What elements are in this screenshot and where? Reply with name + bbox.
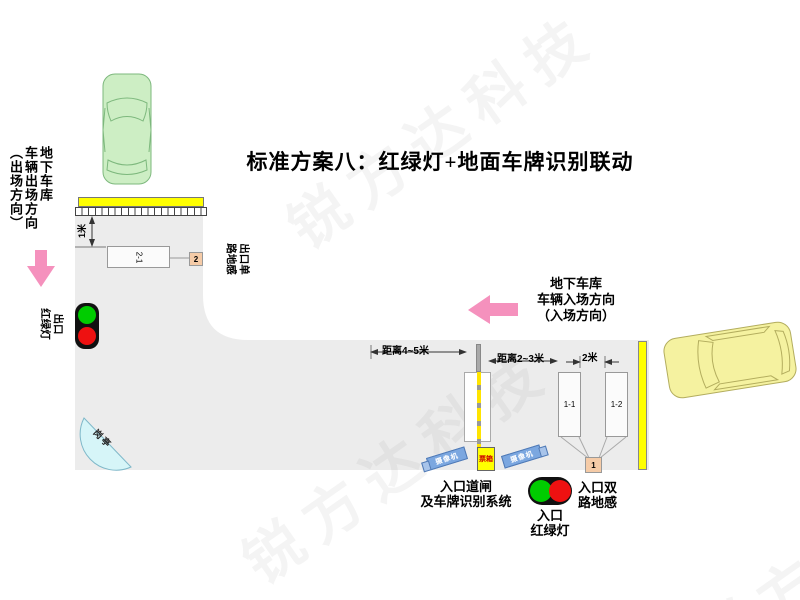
dim-2m-label: 2米 <box>582 349 598 364</box>
entry-traffic-light <box>528 477 572 505</box>
exit-sensor-line2: 路地感 <box>224 233 237 285</box>
dim-4-5m-label: 距离4~5米 <box>382 342 429 357</box>
entry-barrier-label: 入口道闸 及车牌识别系统 <box>404 479 528 509</box>
exit-light-label-line1: 出口 <box>51 298 64 350</box>
exit-light-red-lamp <box>78 327 96 345</box>
diagram-canvas: 锐方达科技 锐方达科技 锐方达科技 标准方案八：红绿灯+地面车牌识别联动 地下车… <box>0 0 800 600</box>
entry-loop-tag: 1 <box>585 457 602 473</box>
exit-sensor-line1: 出口单 <box>237 233 250 285</box>
dim-2-3m-label: 距离2~3米 <box>497 350 544 365</box>
exit-light-green-lamp <box>78 306 96 324</box>
diagram-drawing-layer <box>0 0 800 600</box>
entry-car <box>662 320 798 399</box>
entry-sensor-line1: 入口双 <box>578 480 648 495</box>
entry-stop-strip <box>638 341 647 470</box>
entry-barrier-line1: 入口道闸 <box>404 479 528 494</box>
exit-direction-label: 地下车库 车辆出场方向 （出场方向） <box>8 146 53 256</box>
exit-lane-marker <box>78 197 204 207</box>
dim-1m-label: 1米 <box>75 216 87 246</box>
entry-direction-line3: （入场方向） <box>500 308 652 324</box>
ticket-box: 票箱 <box>477 447 495 471</box>
exit-loop-box-label: 2-1 <box>134 251 143 263</box>
entry-direction-line2: 车辆入场方向 <box>500 292 652 308</box>
exit-loop-box: 2-1 <box>107 246 170 268</box>
entry-loop-box-2: 1-2 <box>605 372 628 437</box>
entry-light-label-line2: 红绿灯 <box>520 523 580 538</box>
entry-direction-line1: 地下车库 <box>500 276 652 292</box>
exit-sensor-label: 出口单 路地感 <box>224 233 250 285</box>
entry-loop-box-1: 1-1 <box>558 372 581 437</box>
entry-light-label-line1: 入口 <box>520 508 580 523</box>
entry-direction-label: 地下车库 车辆入场方向 （入场方向） <box>500 276 652 324</box>
exit-direction-line3: （出场方向） <box>8 146 23 256</box>
entry-light-label: 入口 红绿灯 <box>520 508 580 538</box>
exit-direction-line2: 车辆出场方向 <box>23 146 38 256</box>
exit-direction-line1: 地下车库 <box>38 146 53 256</box>
entry-barrier-arm <box>477 372 481 448</box>
entry-barrier-pole <box>476 344 481 372</box>
entry-sensor-line2: 路地感 <box>578 495 648 510</box>
diagram-title: 标准方案八：红绿灯+地面车牌识别联动 <box>160 146 720 176</box>
exit-car <box>103 74 151 184</box>
exit-loop-tag: 2 <box>189 252 203 266</box>
exit-light-label-line2: 红绿灯 <box>38 298 51 350</box>
exit-barrier-hatch <box>75 207 207 216</box>
entry-barrier-line2: 及车牌识别系统 <box>404 494 528 509</box>
entry-sensor-label: 入口双 路地感 <box>578 480 648 510</box>
exit-traffic-light <box>75 303 99 349</box>
exit-light-label: 出口 红绿灯 <box>36 298 64 350</box>
entry-light-red-lamp <box>549 480 571 502</box>
